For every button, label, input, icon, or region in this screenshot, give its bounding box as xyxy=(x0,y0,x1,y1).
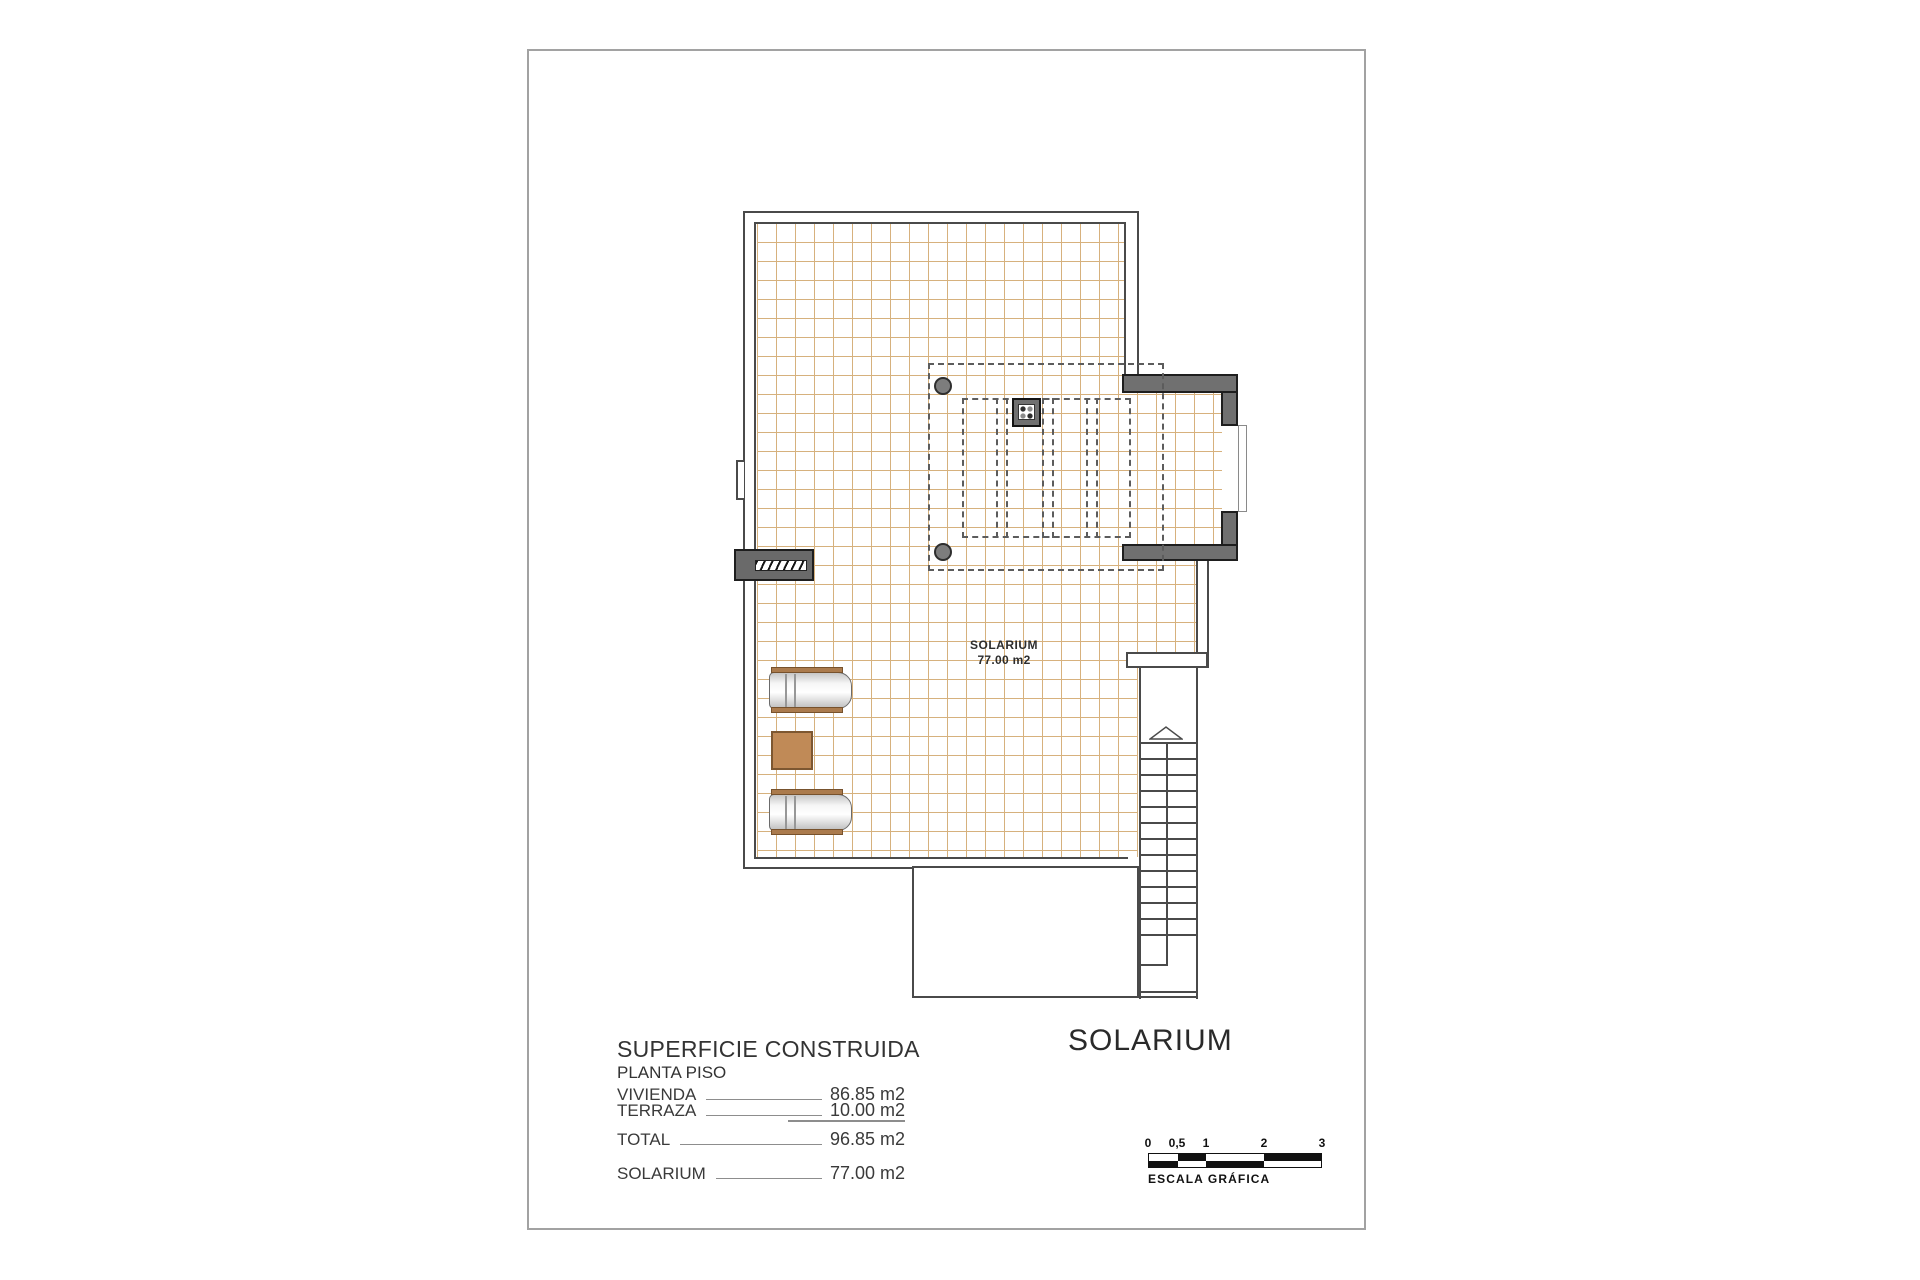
room-name: SOLARIUM xyxy=(948,638,1060,653)
summary-title: SUPERFICIE CONSTRUIDA xyxy=(617,1036,920,1063)
room-label: SOLARIUM 77.00 m2 xyxy=(948,638,1060,668)
leader-line xyxy=(716,1178,822,1179)
row-value: 10.00 m2 xyxy=(830,1100,905,1121)
row-label: SOLARIUM xyxy=(617,1164,706,1184)
row-value: 96.85 m2 xyxy=(830,1129,905,1150)
summary-subtitle: PLANTA PISO xyxy=(617,1063,726,1083)
stairwell-top-wall xyxy=(1126,652,1208,668)
scale-tick: 0,5 xyxy=(1169,1136,1186,1150)
lounger-fold-line xyxy=(794,796,796,829)
wall-bottom-outer xyxy=(743,867,914,869)
scale-tick: 2 xyxy=(1261,1136,1268,1150)
lounger-fold-line xyxy=(785,674,787,707)
sun-lounger xyxy=(769,667,852,713)
summary-row-total: TOTAL 96.85 m2 xyxy=(617,1129,905,1147)
lounger-fold-line xyxy=(794,674,796,707)
lounger-trim xyxy=(771,667,843,673)
leader-line xyxy=(680,1144,822,1145)
scale-segment xyxy=(1206,1161,1263,1168)
bbq-unit xyxy=(1012,398,1041,427)
pergola-column xyxy=(934,377,952,395)
parapet-right-lower xyxy=(1221,511,1238,546)
stair-center-line-foot xyxy=(1139,964,1167,966)
summary-row-terraza: TERRAZA 10.00 m2 xyxy=(617,1100,905,1118)
scale-bar xyxy=(1148,1153,1322,1168)
summary-row-solarium: SOLARIUM 77.00 m2 xyxy=(617,1163,905,1181)
pergola-beam-line xyxy=(1096,398,1098,538)
pergola-beam-line xyxy=(996,398,998,538)
wall-bottom-inner xyxy=(754,857,1128,859)
bbq-burners-icon xyxy=(1018,404,1035,420)
lounger-trim xyxy=(771,707,843,713)
wall-top-outer xyxy=(743,211,1139,213)
parapet-window xyxy=(1238,425,1247,512)
sun-lounger xyxy=(769,789,852,835)
stair-treads xyxy=(1141,742,1196,936)
wall-right-inner-mid xyxy=(1196,558,1198,655)
pergola-beam-line xyxy=(1042,398,1044,538)
stair-direction-arrow-icon xyxy=(1149,726,1183,740)
pergola-inner-dashed-outline xyxy=(962,398,1131,538)
ac-unit xyxy=(734,549,814,581)
scale-caption: ESCALA GRÁFICA xyxy=(1148,1172,1270,1186)
wall-top-inner xyxy=(754,222,1126,224)
wall-left-inner xyxy=(754,222,756,859)
side-table xyxy=(771,731,813,770)
terrace-outline xyxy=(912,866,1139,998)
parapet-right-upper xyxy=(1221,391,1238,426)
scale-tick: 1 xyxy=(1203,1136,1210,1150)
scale-tick: 0 xyxy=(1145,1136,1152,1150)
leader-line xyxy=(706,1115,822,1116)
stairwell-bottom-line-1 xyxy=(1139,991,1198,993)
stairwell-bottom-line-2 xyxy=(1139,996,1198,998)
scale-tick: 3 xyxy=(1319,1136,1326,1150)
row-value: 77.00 m2 xyxy=(830,1163,905,1184)
lounger-body xyxy=(769,672,852,709)
stairwell-right-wall xyxy=(1196,668,1198,999)
wall-right-inner-upper xyxy=(1124,222,1126,380)
room-area: 77.00 m2 xyxy=(948,653,1060,668)
ac-grille-icon xyxy=(755,560,807,571)
floor-plan-sheet-canvas: SOLARIUM 77.00 m2 SUPERFICIE CONSTRUIDA … xyxy=(0,0,1920,1280)
lounger-fold-line xyxy=(785,796,787,829)
pergola-beam-line xyxy=(1006,398,1008,538)
lounger-body xyxy=(769,794,852,831)
lounger-trim xyxy=(771,829,843,835)
wall-right-outer-upper xyxy=(1137,211,1139,380)
stair-center-line xyxy=(1166,742,1168,966)
scale-segment xyxy=(1178,1161,1207,1168)
row-label: TERRAZA xyxy=(617,1101,696,1121)
pergola-beam-line xyxy=(1052,398,1054,538)
lounger-trim xyxy=(771,789,843,795)
scale-segment xyxy=(1149,1161,1178,1168)
sheet-title: SOLARIUM xyxy=(1068,1024,1233,1058)
wall-notch-left xyxy=(736,460,744,500)
wall-left-outer xyxy=(743,211,745,869)
scale-segment xyxy=(1264,1161,1321,1168)
pergola-column xyxy=(934,543,952,561)
subtotal-rule xyxy=(788,1120,905,1122)
row-label: TOTAL xyxy=(617,1130,670,1150)
pergola-beam-line xyxy=(1086,398,1088,538)
